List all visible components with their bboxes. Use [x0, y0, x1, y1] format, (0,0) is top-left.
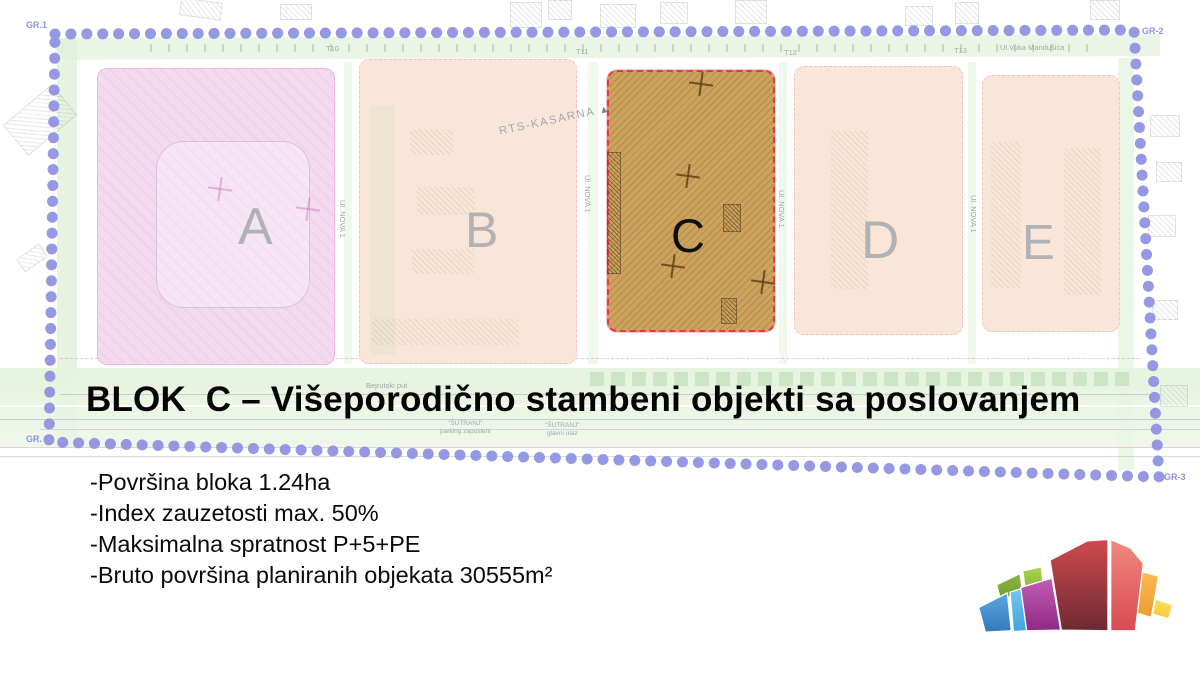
street-label-nova1: Ul. NOVA 1	[583, 175, 592, 213]
survey-cross	[687, 70, 714, 97]
block-b-label: B	[465, 205, 498, 255]
bg-building	[1152, 300, 1178, 320]
block-d-label: D	[861, 214, 899, 267]
logo-segment-coral	[1111, 540, 1144, 631]
bg-building	[1150, 115, 1180, 137]
street-label-nova1: Ul. NOVA 1	[969, 195, 978, 233]
block-e-building	[1064, 148, 1101, 295]
bg-building	[600, 4, 636, 28]
block-e-building	[991, 142, 1021, 288]
block-c-label: C	[671, 212, 705, 259]
block-b-building	[372, 319, 519, 345]
block-a-inner-road	[156, 141, 310, 308]
bg-building	[280, 4, 312, 20]
logo-segment-blue	[979, 593, 1012, 632]
bg-building	[1148, 215, 1176, 237]
survey-cross	[674, 162, 701, 189]
detail-line-area: -Površina bloka 1.24ha	[90, 467, 552, 498]
bg-building	[660, 2, 688, 24]
block-c-highlighted: C	[607, 70, 775, 332]
block-e: E	[982, 75, 1120, 332]
boundary-label-gr1: GR.1	[26, 20, 47, 30]
detail-line-gross-area: -Bruto površina planiranih objekata 3055…	[90, 560, 552, 591]
lane-line-6	[0, 456, 1200, 457]
logo-segment-yellow	[1153, 599, 1173, 619]
bg-building	[1090, 0, 1120, 20]
lane-line-4	[40, 429, 1200, 430]
survey-cross	[206, 175, 233, 202]
road-marker-t11: T11	[576, 47, 588, 56]
detail-line-floors: -Maksimalna spratnost P+5+PE	[90, 529, 552, 560]
street-label-top: Ul.Vuka Mandušića	[1000, 43, 1064, 52]
survey-cross	[294, 195, 321, 222]
detail-line-index: -Index zauzetosti max. 50%	[90, 498, 552, 529]
block-a: A	[97, 68, 335, 365]
block-b: B	[359, 59, 577, 364]
bg-building	[1156, 162, 1182, 182]
road-marker-t10: T10	[326, 44, 339, 53]
block-c-building	[607, 152, 621, 274]
survey-cross	[749, 268, 776, 295]
boundary-label-gr2: GR-2	[1142, 26, 1164, 36]
bg-building	[735, 0, 767, 24]
bg-building	[16, 243, 48, 272]
block-b-building	[410, 129, 453, 155]
bg-building	[1160, 385, 1188, 407]
lane-line-5	[0, 447, 1200, 448]
block-details: -Površina bloka 1.24ha -Index zauzetosti…	[90, 467, 552, 591]
block-b-building	[370, 105, 395, 355]
bg-building	[510, 2, 542, 28]
bg-building	[955, 2, 979, 24]
road-marker-t13: T13	[954, 46, 967, 55]
label-sutranj-parking: "ŠUTRANJ" parking zaposleni	[440, 420, 491, 437]
boundary-label-gr4: GR.	[26, 434, 42, 444]
block-c-building	[723, 204, 741, 232]
presentation-slide: A B RTS-KASARNA▲ C D	[0, 0, 1200, 676]
logo-segment-dark-red	[1050, 540, 1108, 631]
label-sutranj-entrance: "ŠUTRANJ" glavni ulaz	[545, 422, 580, 439]
slide-title: BLOK C – Višeporodično stambeni objekti …	[86, 380, 1080, 420]
urban-plan-map: A B RTS-KASARNA▲ C D	[0, 0, 1200, 520]
bg-building	[548, 0, 572, 20]
boundary-label-gr3: GR-3	[1164, 472, 1186, 482]
block-e-label: E	[1022, 219, 1055, 268]
street-label-nova1: Ul. NOVA 1	[338, 200, 347, 238]
road-marker-t12: T12	[784, 48, 797, 57]
street-label-nova1: Ul. NOVA 1	[777, 190, 786, 228]
block-c-building	[721, 298, 737, 324]
block-d: D	[794, 66, 963, 335]
company-logo	[950, 528, 1200, 674]
block-a-label: A	[238, 201, 273, 253]
bg-building	[179, 0, 223, 21]
bg-building	[905, 6, 933, 26]
